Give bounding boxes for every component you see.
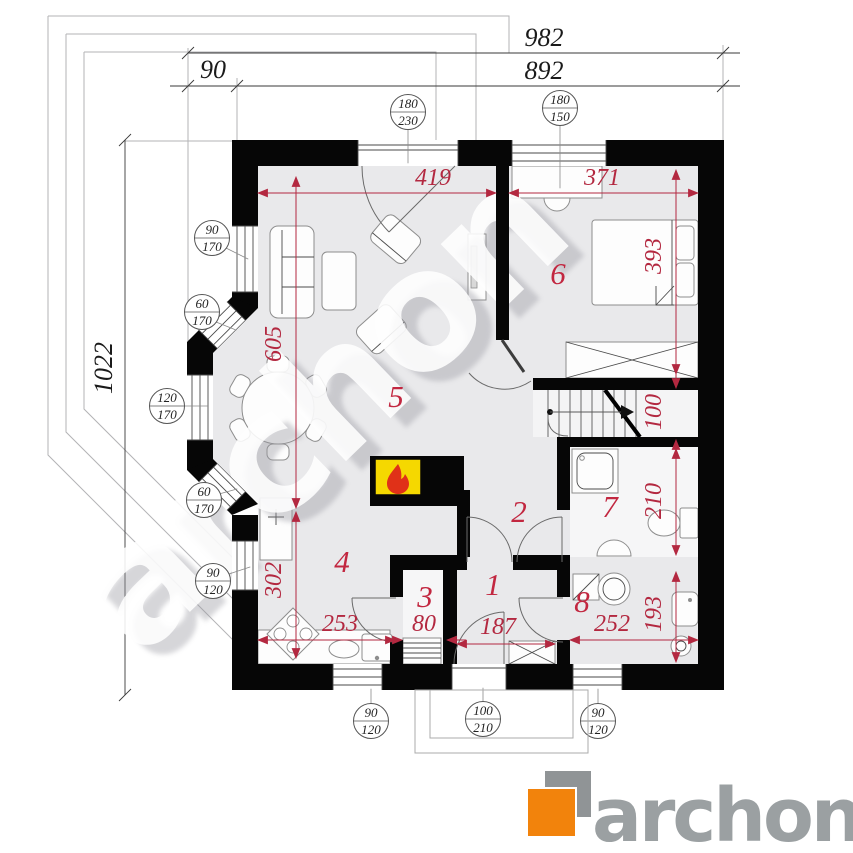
svg-text:120: 120 [588, 722, 608, 737]
right-wall [698, 140, 724, 690]
dim-stairs-width: 100 [641, 394, 667, 430]
kitchen-left-window [232, 541, 258, 590]
left-window [232, 226, 258, 292]
bay-window [187, 375, 213, 440]
floor-drain [671, 636, 691, 656]
svg-text:170: 170 [202, 239, 222, 254]
pillow [676, 226, 694, 260]
dim-hall-width: 187 [480, 614, 517, 640]
pantry-shelves [403, 638, 441, 664]
dim-bathroom-depth: 210 [641, 483, 667, 519]
svg-text:100: 100 [473, 703, 493, 718]
dim-utility-depth: 193 [641, 596, 667, 632]
dim-pantry-width: 80 [412, 611, 436, 637]
bedroom-wardrobe [566, 342, 698, 378]
dim-left-total: 1022 [89, 342, 118, 394]
utility-window-spec: 90 120 [581, 704, 616, 739]
kitchen-sink-oval [329, 640, 359, 658]
dim-kitchen-width: 253 [322, 611, 358, 637]
logo-orange-square [527, 788, 576, 837]
pillow [676, 263, 694, 297]
dim-bedroom-depth: 393 [641, 238, 667, 275]
room-label-pantry: 3 [416, 579, 433, 614]
dim-top-total: 982 [525, 23, 564, 52]
balcony-door-spec: 180 230 [391, 95, 426, 130]
svg-text:120: 120 [203, 582, 223, 597]
svg-text:180: 180 [550, 92, 570, 107]
svg-text:90: 90 [206, 222, 220, 237]
fireplace [370, 456, 464, 506]
bedroom-window [512, 140, 606, 166]
room-label-bathroom: 7 [602, 489, 619, 524]
svg-text:60: 60 [198, 484, 212, 499]
svg-text:90: 90 [365, 705, 379, 720]
floor-plan-page: 982 892 90 1022 [0, 0, 853, 853]
room-label-living-room: 5 [388, 379, 404, 414]
logo-text: archon [592, 773, 853, 853]
bay-window-spec: 120 170 [150, 389, 185, 424]
svg-text:120: 120 [361, 722, 381, 737]
dim-kitchen-depth: 302 [261, 562, 287, 599]
shower [572, 449, 618, 493]
bedroom-window-spec: 180 150 [543, 91, 578, 126]
kitchen-bottom-window-spec: 90 120 [354, 704, 389, 739]
dim-living-width: 419 [415, 165, 451, 191]
utility-window [573, 664, 622, 690]
room-label-corridor: 2 [511, 494, 527, 529]
living-bedroom-wall [496, 166, 509, 340]
svg-text:210: 210 [473, 720, 493, 735]
dim-living-depth: 605 [261, 326, 287, 362]
svg-text:230: 230 [398, 113, 418, 128]
faucet [375, 656, 379, 660]
svg-text:90: 90 [207, 565, 221, 580]
bay-lower-window-spec: 60 170 [187, 483, 222, 518]
svg-text:170: 170 [194, 501, 214, 516]
svg-text:170: 170 [157, 407, 177, 422]
kitchen-left-window-spec: 90 120 [196, 564, 231, 599]
svg-text:90: 90 [592, 705, 606, 720]
front-door-spec: 100 210 [466, 702, 501, 737]
room-label-kitchen: 4 [334, 544, 350, 579]
dim-top-left-segment: 90 [200, 55, 226, 84]
dim-bedroom-width: 371 [583, 165, 620, 191]
floor-plan-canvas: 982 892 90 1022 [0, 0, 853, 853]
svg-text:60: 60 [196, 296, 210, 311]
svg-text:150: 150 [550, 109, 570, 124]
svg-text:170: 170 [192, 313, 212, 328]
left-window-spec: 90 170 [195, 221, 230, 256]
svg-text:120: 120 [157, 390, 177, 405]
svg-text:180: 180 [398, 96, 418, 111]
kitchen-bottom-window [333, 664, 382, 690]
stair-floor [533, 390, 698, 437]
room-label-bedroom: 6 [550, 256, 566, 291]
bay-upper-window-spec: 60 170 [185, 295, 220, 330]
dim-utility-width: 252 [594, 611, 630, 637]
room-label-hall: 1 [485, 567, 501, 602]
dim-top-inner: 892 [525, 56, 564, 85]
room-label-utility: 8 [574, 584, 590, 619]
